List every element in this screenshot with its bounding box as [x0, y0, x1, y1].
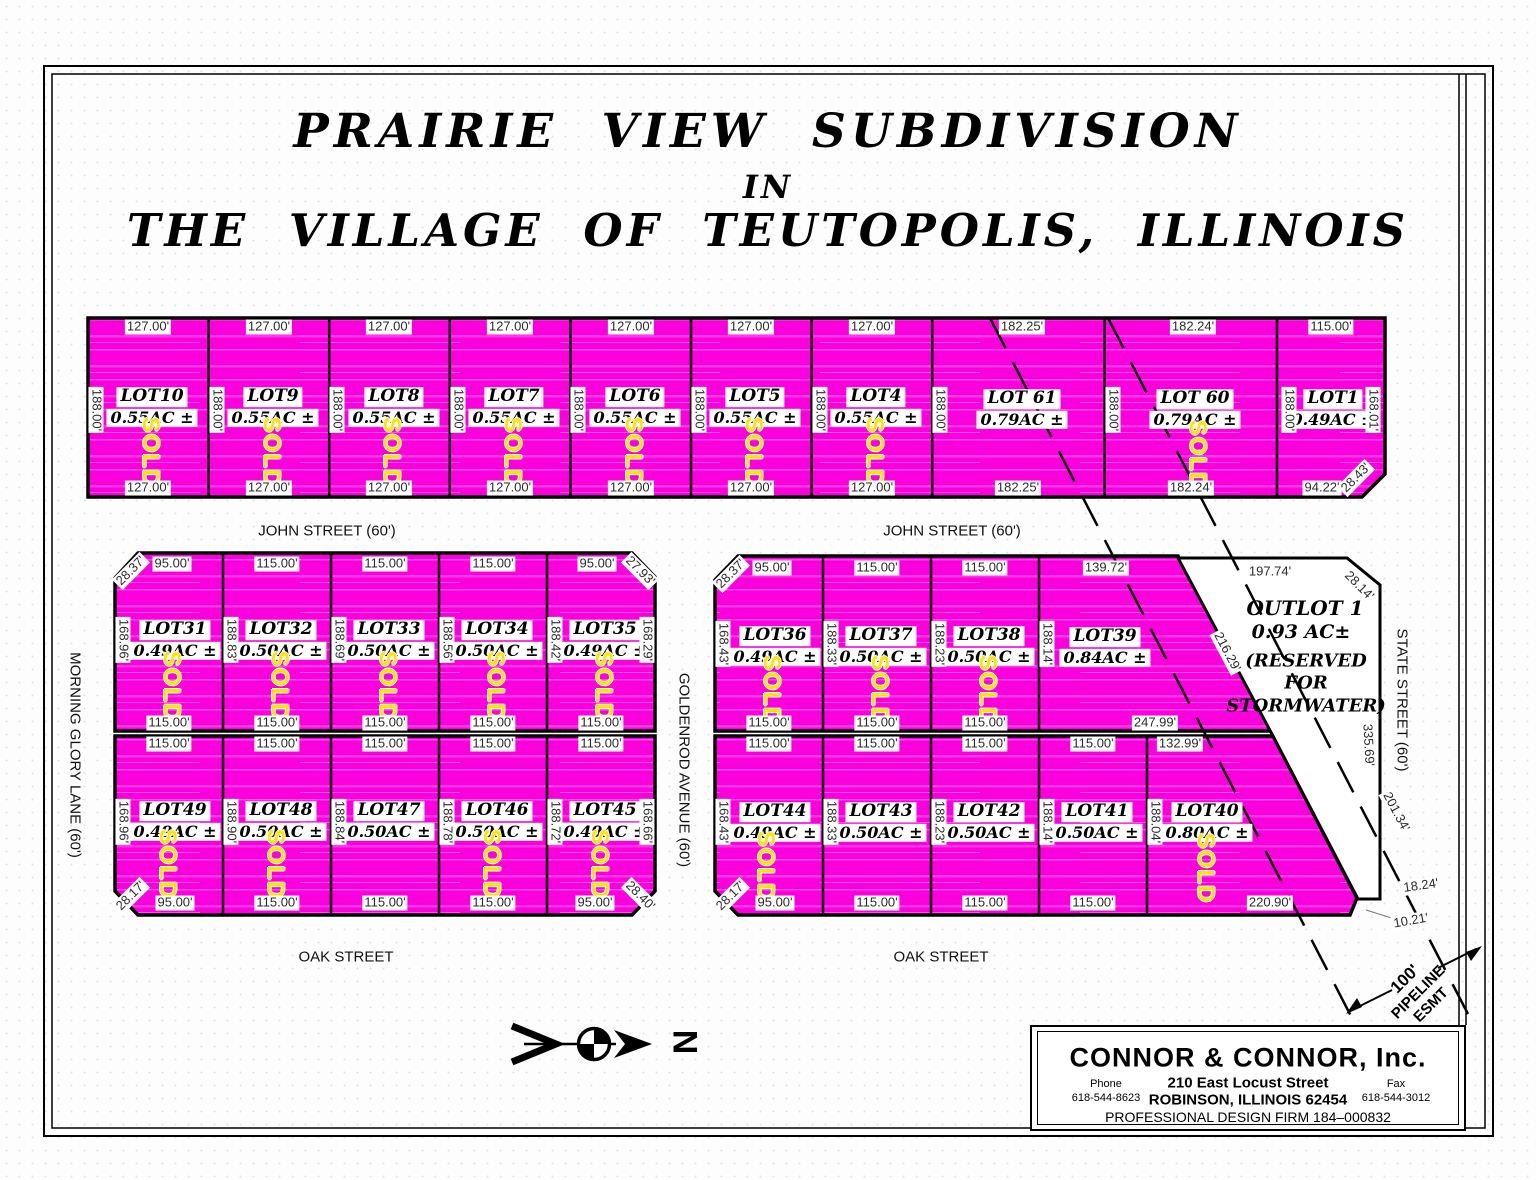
company-address-line2: ROBINSON, ILLINOIS 62454 [1149, 1092, 1347, 1109]
plat-sheet: PRAIRIE VIEW SUBDIVISION IN THE VILLAGE … [0, 0, 1536, 1180]
dimension-label: 127.00' [728, 320, 774, 335]
dimension-label: 94.22' [1302, 481, 1341, 496]
plat-title-line2: IN [0, 168, 1536, 206]
lot-area-label: 0.50AC ± [1051, 824, 1142, 842]
dimension-label: 168.29' [640, 617, 655, 663]
street-label-oak-east: OAK STREET [893, 949, 988, 966]
dimension-label: 168.43' [716, 799, 731, 845]
dimension-label: 127.00' [608, 481, 654, 496]
street-label-oak-west: OAK STREET [298, 949, 393, 966]
dimension-label: 188.00' [1282, 387, 1297, 433]
dimension-label: 95.00' [575, 896, 614, 911]
design-firm-number: PROFESSIONAL DESIGN FIRM 184–000832 [1105, 1109, 1391, 1125]
dimension-label: 188.00' [692, 387, 707, 433]
lot-name-label: LOT46 [461, 801, 532, 821]
lot-name-label: LOT39 [1069, 627, 1140, 647]
dimension-label: 127.00' [366, 481, 412, 496]
dimension-label: 188.14' [1040, 621, 1055, 667]
dimension-label: 115.00' [362, 716, 407, 731]
outlot-note-line2: FOR [1284, 673, 1327, 694]
plat-title-line1: PRAIRIE VIEW SUBDIVISION [0, 104, 1536, 159]
dimension-label: 188.00' [330, 387, 345, 433]
outlot-dimension-label: 197.74' [1247, 565, 1293, 580]
dimension-label: 168.43' [716, 621, 731, 667]
dimension-label: 115.00' [746, 737, 791, 752]
dimension-label: 188.00' [89, 387, 104, 433]
dimension-label: 188.90' [224, 799, 239, 845]
lot-name-label: LOT35 [569, 620, 640, 640]
dimension-label: 115.00' [962, 716, 1007, 731]
dimension-label: 95.00' [155, 896, 194, 911]
sold-marker: SOLD [257, 417, 285, 488]
dimension-label: 220.90' [1247, 896, 1293, 911]
dimension-label: 115.00' [254, 737, 299, 752]
dimension-label: 247.99' [1132, 716, 1178, 731]
lot-name-label: LOT32 [245, 620, 316, 640]
sold-marker: SOLD [498, 417, 526, 488]
dimension-label: 115.00' [362, 896, 407, 911]
lot-name-label: LOT42 [953, 802, 1024, 822]
lot-name-label: LOT43 [845, 802, 916, 822]
dimension-label: 115.00' [962, 561, 1007, 576]
dimension-label: 216.29' [1210, 628, 1245, 676]
company-name: CONNOR & CONNOR, Inc. [1069, 1043, 1426, 1074]
dimension-label: 115.00' [746, 716, 791, 731]
lot-name-label: LOT7 [484, 387, 543, 407]
dimension-label: 188.00' [1106, 387, 1121, 433]
dimension-label: 188.23' [932, 799, 947, 845]
lot-name-label: LOT41 [1061, 802, 1132, 822]
lot-name-label: LOT38 [953, 626, 1024, 646]
lot-name-label: LOT45 [569, 801, 640, 821]
dimension-label: 28.37' [112, 552, 150, 590]
sold-marker: SOLD [153, 829, 181, 900]
lot-name-label: LOT 61 [984, 389, 1061, 409]
lot-name-label: LOT47 [353, 801, 424, 821]
dimension-label: 95.00' [577, 557, 616, 572]
dimension-label: 115.00' [470, 737, 515, 752]
dimension-label: 95.00' [152, 557, 191, 572]
sold-marker: SOLD [585, 829, 613, 900]
dimension-label: 201.34' [1379, 788, 1414, 836]
dimension-label: 27.93' [621, 552, 659, 590]
dimension-label: 168.66' [640, 799, 655, 845]
dimension-label: 127.00' [246, 481, 292, 496]
dimension-label: 115.00' [254, 716, 299, 731]
sold-marker: SOLD [589, 651, 617, 722]
lot-area-label: 0.50AC ± [943, 824, 1034, 842]
dimension-label: 188.00' [210, 387, 225, 433]
dimension-label: 127.00' [849, 481, 895, 496]
sold-marker: SOLD [377, 417, 405, 488]
lot-name-label: LOT9 [243, 387, 302, 407]
sold-marker: SOLD [157, 651, 185, 722]
outlot-note-line3: STORMWATER) [1226, 696, 1386, 717]
lot-name-label: LOT40 [1171, 802, 1242, 822]
street-label-goldenrod: GOLDENROD AVENUE (60') [676, 673, 693, 867]
outlot-name: OUTLOT 1 [1247, 596, 1364, 620]
dimension-label: 115.00' [962, 896, 1007, 911]
dimension-label: 188.33' [824, 799, 839, 845]
lot-name-label: LOT36 [739, 626, 810, 646]
lot-area-label: 0.84AC ± [1059, 649, 1150, 667]
dimension-label: 95.00' [755, 896, 794, 911]
dimension-label: 188.83' [224, 617, 239, 663]
dimension-label: 115.00' [854, 737, 899, 752]
sold-marker: SOLD [373, 651, 401, 722]
dimension-label: 188.78' [440, 799, 455, 845]
dimension-label: 115.00' [1070, 737, 1115, 752]
lot-name-label: LOT 60 [1157, 389, 1234, 409]
dimension-label: 28.40' [621, 877, 659, 915]
dimension-label: 115.00' [254, 896, 299, 911]
outlot-area: 0.93 AC± [1252, 621, 1351, 643]
dimension-label: 188.14' [1040, 799, 1055, 845]
dimension-label: 168.96' [116, 799, 131, 845]
dimension-label: 188.00' [451, 387, 466, 433]
sold-marker: SOLD [265, 651, 293, 722]
dimension-label: 28.17' [712, 877, 750, 915]
dimension-label: 182.25' [995, 481, 1041, 496]
lot-name-label: LOT5 [725, 387, 784, 407]
dimension-label: 127.00' [849, 320, 895, 335]
dimension-label: 168.96' [116, 617, 131, 663]
dimension-label: 182.24' [1170, 320, 1216, 335]
dimension-label: 115.00' [578, 737, 623, 752]
sold-marker: SOLD [739, 417, 767, 488]
dimension-label: 115.00' [362, 737, 407, 752]
dimension-label: 28.43' [1337, 459, 1375, 497]
sold-marker: SOLD [860, 417, 888, 488]
sold-marker: SOLD [136, 417, 164, 488]
dimension-label: 188.04' [1148, 799, 1163, 845]
fax-label: Fax [1387, 1078, 1405, 1090]
lot-name-label: LOT49 [139, 801, 210, 821]
sold-marker: SOLD [481, 651, 509, 722]
lot-name-label: LOT31 [139, 620, 210, 640]
surveyor-title-block: CONNOR & CONNOR, Inc. Phone 618-544-8623… [1030, 1025, 1466, 1131]
dimension-label: 182.25' [999, 320, 1045, 335]
dimension-label: 115.00' [854, 896, 899, 911]
lot-area-label: 0.50AC ± [343, 823, 434, 841]
dimension-label: 188.72' [548, 799, 563, 845]
sold-marker: SOLD [751, 831, 779, 902]
company-address-line1: 210 East Locust Street [1168, 1075, 1329, 1092]
dimension-label: 28.37' [712, 555, 750, 593]
lot-area-label: 0.50AC ± [835, 824, 926, 842]
street-label-state: STATE STREET (60') [1394, 629, 1411, 772]
lot-name-label: LOT10 [116, 387, 187, 407]
dimension-label: 115.00' [146, 716, 191, 731]
lot-area-label: 0.79AC ± [976, 411, 1067, 429]
outlot-note-line1: (RESERVED [1245, 651, 1367, 672]
dimension-label: 115.00' [470, 557, 515, 572]
lot-name-label: LOT48 [245, 801, 316, 821]
outlot-dimension-label: 335.69' [1359, 722, 1376, 769]
sold-marker: SOLD [1191, 833, 1219, 904]
surveyor-title-block-inner-border: CONNOR & CONNOR, Inc. Phone 618-544-8623… [1037, 1031, 1459, 1125]
outlot-dimension-label: 10.21' [1390, 910, 1431, 931]
street-label-john-east: JOHN STREET (60') [883, 523, 1021, 540]
dimension-label: 127.00' [125, 481, 171, 496]
dimension-label: 168.01' [1366, 387, 1381, 433]
dimension-label: 127.00' [608, 320, 654, 335]
dimension-label: 139.72' [1083, 561, 1129, 576]
dimension-label: 95.00' [752, 561, 791, 576]
dimension-label: 188.56' [440, 617, 455, 663]
street-label-john-west: JOHN STREET (60') [258, 523, 396, 540]
lot-name-label: LOT44 [739, 802, 810, 822]
dimension-label: 127.00' [728, 481, 774, 496]
dimension-label: 115.00' [362, 557, 407, 572]
lot-name-label: LOT33 [353, 620, 424, 640]
dimension-label: 188.69' [332, 617, 347, 663]
dimension-label: 115.00' [146, 737, 191, 752]
lot-name-label: LOT4 [846, 387, 905, 407]
dimension-label: 188.33' [824, 621, 839, 667]
dimension-label: 115.00' [470, 716, 515, 731]
dimension-label: 127.00' [246, 320, 292, 335]
lot-name-label: LOT6 [605, 387, 664, 407]
dimension-label: 182.24' [1168, 481, 1214, 496]
dimension-label: 115.00' [854, 561, 899, 576]
label-layer: PRAIRIE VIEW SUBDIVISION IN THE VILLAGE … [0, 0, 1536, 1180]
sold-marker: SOLD [477, 829, 505, 900]
dimension-label: 28.17' [112, 877, 150, 915]
dimension-label: 188.84' [332, 799, 347, 845]
phone-label: Phone [1090, 1078, 1122, 1090]
dimension-label: 132.99' [1157, 737, 1203, 752]
dimension-label: 115.00' [1070, 896, 1115, 911]
dimension-label: 127.00' [487, 320, 533, 335]
dimension-label: 18.24' [1401, 876, 1442, 896]
dimension-label: 188.42' [548, 617, 563, 663]
dimension-label: 115.00' [578, 716, 623, 731]
pipeline-easement-label: 100' PIPELINE ESMT [1374, 948, 1462, 1036]
dimension-label: 115.00' [254, 557, 299, 572]
dimension-label: 115.00' [962, 737, 1007, 752]
fax-number: 618-544-3012 [1362, 1092, 1431, 1104]
dimension-label: 127.00' [125, 320, 171, 335]
dimension-label: 188.00' [933, 387, 948, 433]
dimension-label: 115.00' [470, 896, 515, 911]
sold-marker: SOLD [619, 417, 647, 488]
north-label: N [665, 1030, 704, 1055]
street-label-morning-glory: MORNING GLORY LANE (60') [67, 652, 84, 858]
dimension-label: 127.00' [366, 320, 412, 335]
lot-name-label: LOT8 [364, 387, 423, 407]
dimension-label: 115.00' [1308, 320, 1353, 335]
phone-number: 618-544-8623 [1072, 1092, 1141, 1104]
lot-name-label: LOT37 [845, 626, 916, 646]
dimension-label: 188.00' [571, 387, 586, 433]
sold-marker: SOLD [261, 829, 289, 900]
dimension-label: 115.00' [854, 716, 899, 731]
dimension-label: 188.23' [932, 621, 947, 667]
lot-name-label: LOT1 [1303, 389, 1362, 409]
lot-name-label: LOT34 [461, 620, 532, 640]
dimension-label: 188.00' [813, 387, 828, 433]
plat-title-line3: THE VILLAGE OF TEUTOPOLIS, ILLINOIS [0, 204, 1536, 257]
dimension-label: 127.00' [487, 481, 533, 496]
